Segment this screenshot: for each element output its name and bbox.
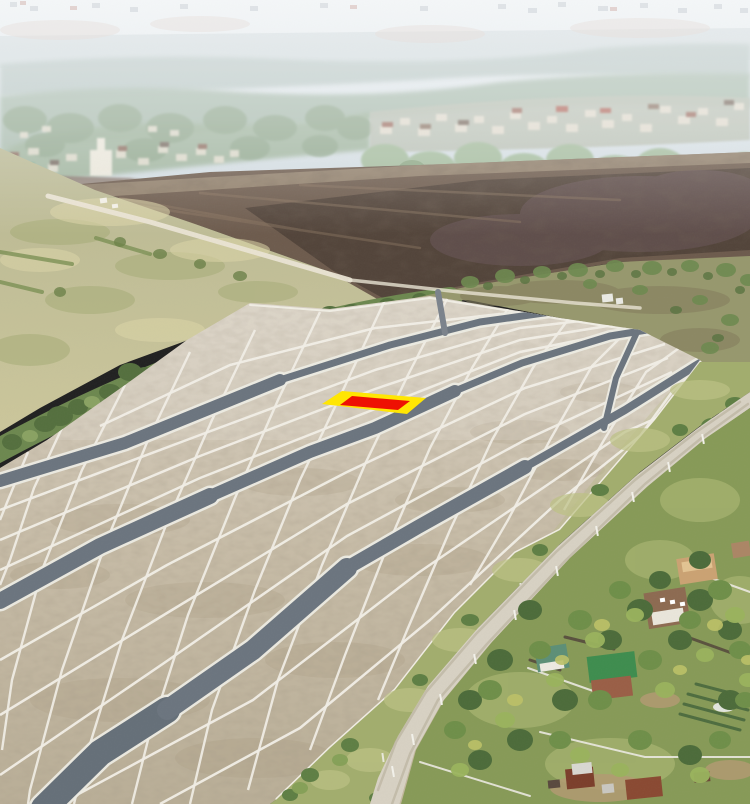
aerial-photo-canvas [0,0,750,804]
atmospheric-haze [0,0,750,235]
aerial-plot-map [0,0,750,804]
